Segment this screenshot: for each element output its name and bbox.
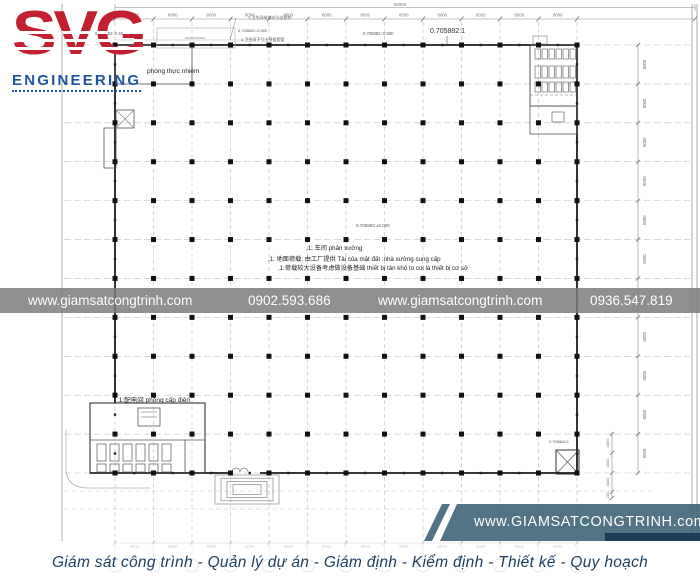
svg-text:0.705882:-0.500: 0.705882:-0.500 (363, 31, 394, 36)
svg-text:8000: 8000 (438, 544, 448, 549)
svg-text:8000: 8000 (130, 544, 140, 549)
svg-text:0.705882:-0.500: 0.705882:-0.500 (238, 28, 268, 33)
svg-text:8000: 8000 (360, 13, 370, 18)
svg-text:96000: 96000 (394, 2, 407, 7)
svg-text:8000: 8000 (361, 544, 371, 549)
watermark-url-2: www.giamsatcongtrinh.com (378, 288, 542, 313)
svg-text:8000: 8000 (642, 59, 647, 69)
svg-text:8000: 8000 (642, 331, 647, 341)
watermark-phone-1: 0902.593.686 (248, 288, 331, 313)
svg-text:8000: 8000 (399, 544, 409, 549)
svg-text:,1:配电间 phòng cấp điện: ,1:配电间 phòng cấp điện (117, 395, 190, 404)
sheet-border (62, 4, 697, 541)
svg-text:8000: 8000 (437, 13, 447, 18)
svg-text:8000: 8000 (284, 544, 294, 549)
dimension-lines: 9600080008000800080008000800080008000800… (113, 2, 697, 500)
svg-text:8000: 8000 (399, 13, 409, 18)
svg-text:8000: 8000 (642, 409, 647, 419)
svg-text:200: 200 (605, 491, 610, 498)
annotations: 0.705882:-0.5000.705882:-0.5000.705882:1… (95, 14, 570, 444)
svg-text:1.卫生间下引出预留套管: 1.卫生间下引出预留套管 (241, 36, 284, 42)
svg-text:8000: 8000 (322, 544, 332, 549)
logo-wordmark: SVG (12, 4, 152, 65)
logo-subtitle: ENGINEERING (12, 72, 141, 92)
watermark-phone-2: 0936.547.819 (590, 288, 673, 313)
svg-text:0.705882:1: 0.705882:1 (430, 28, 465, 35)
svg-text:8000: 8000 (642, 254, 647, 264)
svg-text:8000: 8000 (476, 13, 486, 18)
company-logo: SVG ENGINEERING (12, 4, 141, 92)
svg-text:8000: 8000 (642, 215, 647, 225)
svg-text:8000: 8000 (322, 13, 332, 18)
svg-text:4000: 4000 (605, 438, 610, 448)
footer-tagline: Giám sát công trình - Quản lý dự án - Gi… (0, 551, 700, 575)
svg-text:1.卫生间给排水引出室外: 1.卫生间给排水引出室外 (248, 14, 291, 20)
svg-text:8000: 8000 (642, 370, 647, 380)
site-badge-underline (605, 533, 700, 541)
svg-text:8000: 8000 (245, 544, 255, 549)
svg-text:8000: 8000 (207, 544, 217, 549)
watermark-band: www.giamsatcongtrinh.com 0902.593.686 ww… (0, 288, 700, 313)
svg-text:0.705882:1: 0.705882:1 (549, 439, 570, 444)
scanned-floorplan-page: 9600080008000800080008000800080008000800… (0, 0, 700, 579)
svg-text:phòng thực nhiệm: phòng thực nhiệm (147, 68, 199, 75)
svg-text:8000: 8000 (168, 13, 178, 18)
svg-text:4000: 4000 (605, 477, 610, 487)
svg-text:8000: 8000 (642, 98, 647, 108)
svg-text:0.705882:±0.000: 0.705882:±0.000 (356, 223, 390, 228)
svg-text:,1: 地面荷载: 由工厂提供 Tải của mặt đ: ,1: 地面荷载: 由工厂提供 Tải của mặt đất :nhà xưở… (268, 255, 441, 263)
svg-text:8000: 8000 (168, 544, 178, 549)
svg-text:8000: 8000 (206, 13, 216, 18)
svg-text:8000: 8000 (642, 176, 647, 186)
svg-text:,1:荷载较大设备考虑做设备基础 thiết bị tản: ,1:荷载较大设备考虑做设备基础 thiết bị tản khó to coi… (278, 264, 468, 272)
svg-text:4000: 4000 (605, 458, 610, 468)
svg-text:,1; 车间 phân xưởng: ,1; 车间 phân xưởng (306, 244, 363, 252)
svg-text:8000: 8000 (514, 13, 524, 18)
watermark-url-1: www.giamsatcongtrinh.com (28, 288, 192, 313)
svg-text:8000: 8000 (553, 13, 563, 18)
svg-text:8000: 8000 (642, 137, 647, 147)
svg-text:8000: 8000 (515, 544, 525, 549)
svg-text:8000: 8000 (553, 544, 563, 549)
svg-text:8000: 8000 (476, 544, 486, 549)
svg-text:8000: 8000 (642, 448, 647, 458)
